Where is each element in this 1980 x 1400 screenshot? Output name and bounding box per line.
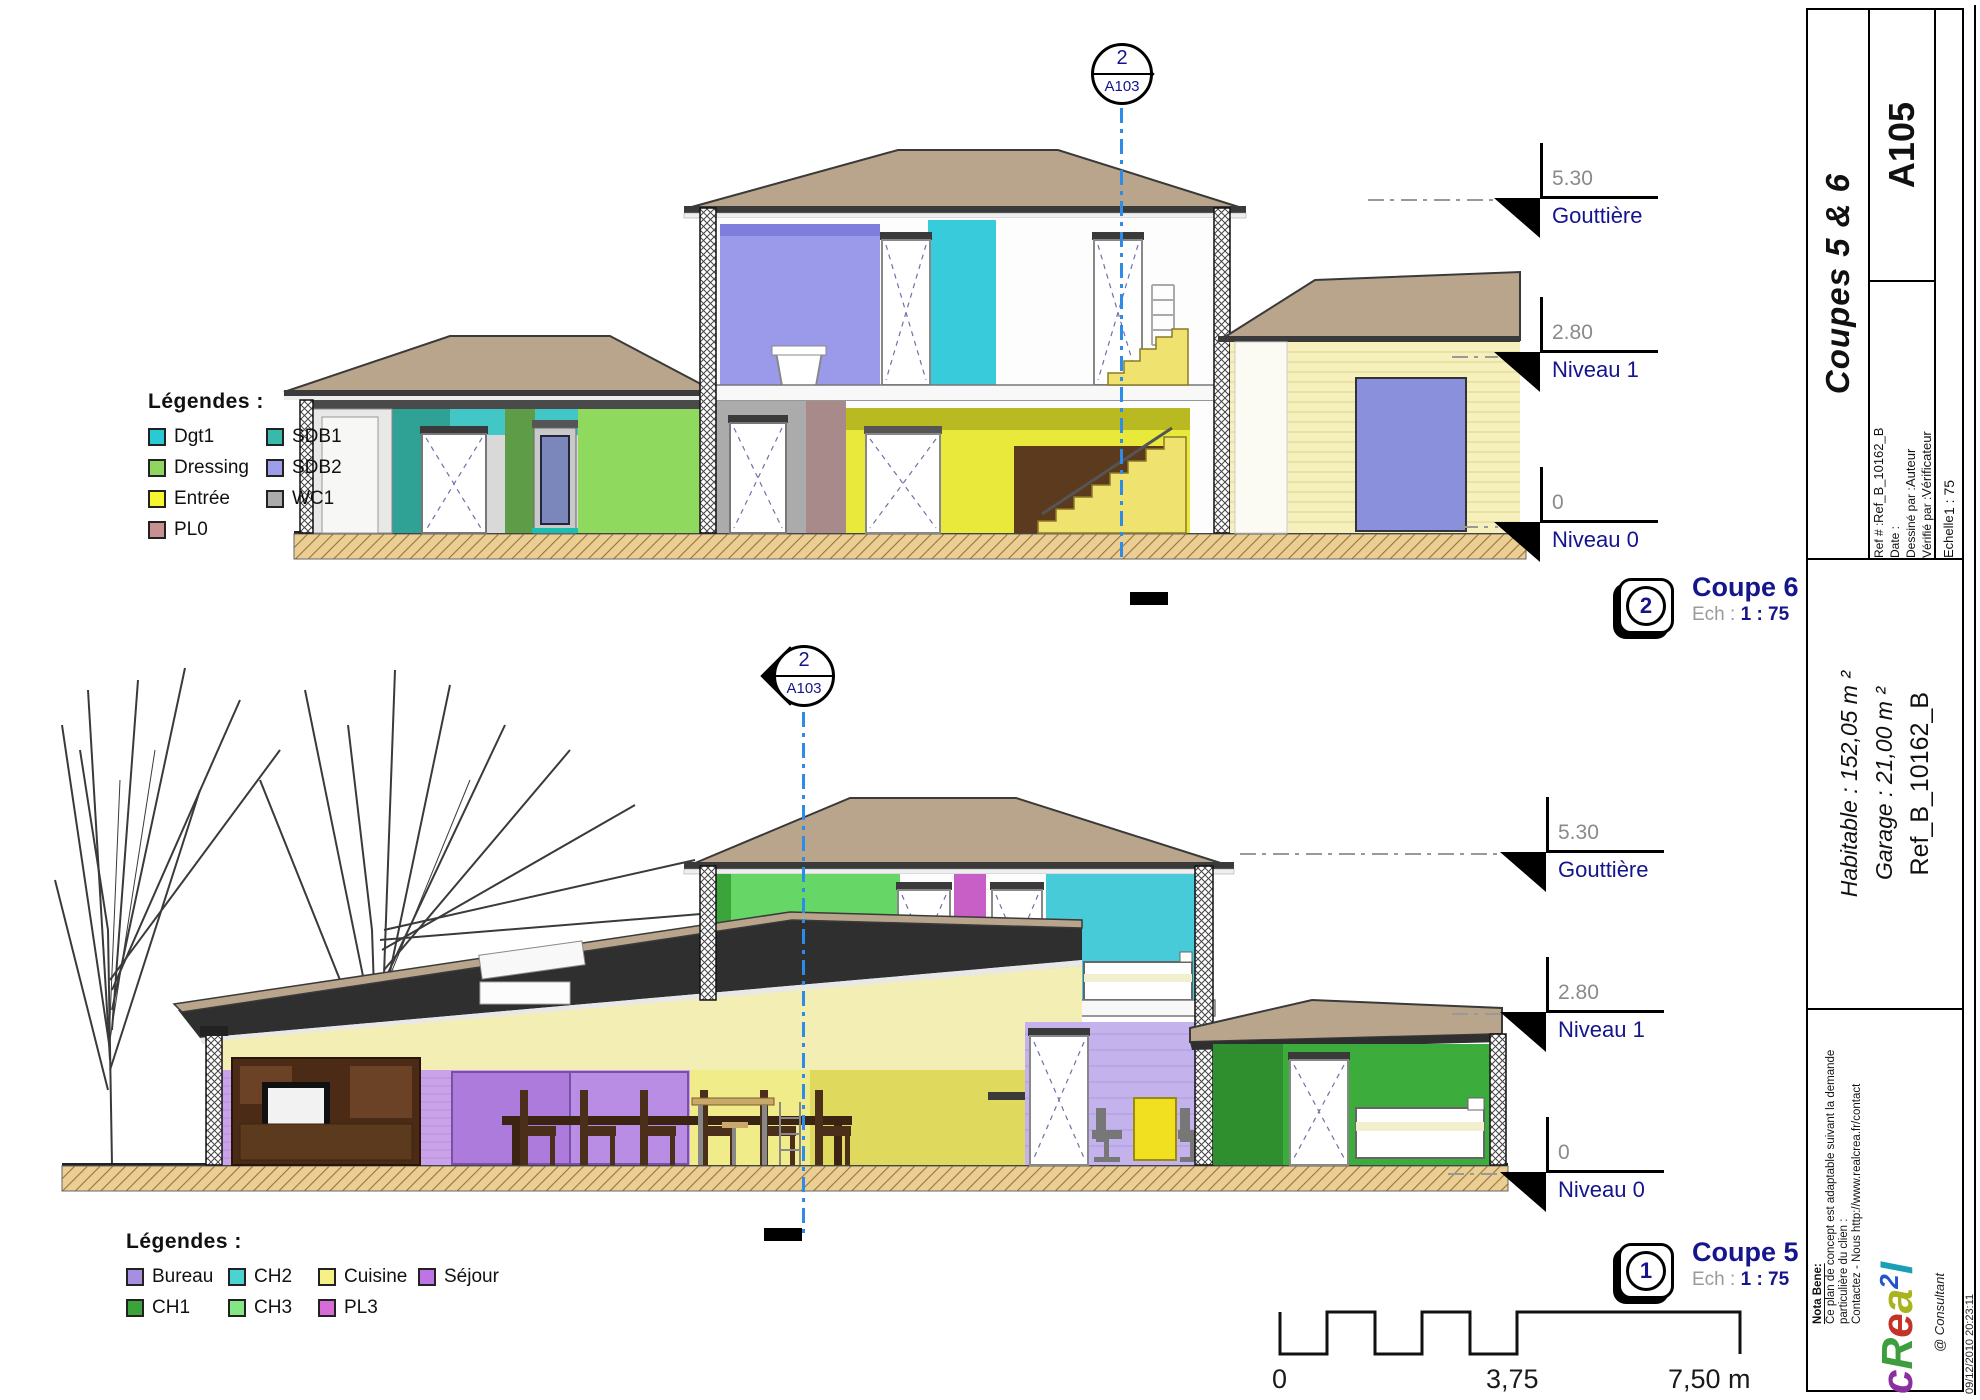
wall-hatched-right — [1195, 866, 1213, 1165]
scale-label: Echelle — [1941, 515, 1956, 558]
legend-item: CH1 — [126, 1297, 228, 1319]
scale-value: 1 : 75 — [1941, 480, 1957, 515]
ref-label: Ref # : — [1872, 523, 1886, 558]
coupe5-drawing — [50, 630, 1550, 1210]
scale-prefix: Ech : — [1692, 604, 1735, 625]
color-swatch — [418, 1268, 436, 1286]
desk — [1134, 1098, 1176, 1160]
section-marker-number: 2 — [773, 649, 835, 672]
legend-title: Légendes : — [148, 390, 342, 414]
garage-area: Garage : 21,00 m ² — [1871, 687, 1898, 880]
legend-item: SDB1 — [266, 426, 342, 448]
legend-item: Dgt1 — [148, 426, 266, 448]
garage-door — [1356, 378, 1466, 531]
scale-bar — [1278, 1302, 1778, 1362]
level-value: 0 — [1558, 1141, 1570, 1165]
wall-hatched-right — [1214, 208, 1230, 533]
right-wing — [1190, 1000, 1506, 1165]
level-triangle-icon — [1494, 522, 1540, 562]
legend-item: WC1 — [266, 488, 342, 510]
room-pl0 — [806, 401, 846, 533]
level-marker-niveau0: 0 Niveau 0 — [1500, 1115, 1730, 1215]
level-dash-line — [1452, 356, 1498, 358]
left-annex — [284, 336, 716, 533]
section-marker-sheet: A103 — [773, 680, 835, 697]
color-swatch — [126, 1299, 144, 1317]
field-checked-by: Vérifié par :Vérificateur — [1918, 282, 1934, 558]
level-triangle-icon — [1494, 352, 1540, 392]
legend-item: SDB2 — [266, 457, 342, 479]
field-drawn-by: Dessiné par :Auteur — [1902, 282, 1918, 558]
field-date: Date : — [1886, 282, 1902, 558]
sheet-title: Coupes 5 & 6 — [1819, 173, 1857, 394]
nota-line: Ce plan de concept est adaptable suivant… — [1825, 1018, 1838, 1324]
scale-middle: 3,75 — [1486, 1364, 1539, 1395]
scale-start: 0 — [1272, 1364, 1287, 1395]
level-triangle-icon — [1500, 1172, 1546, 1212]
nota-title: Nota Bene: — [1812, 1018, 1825, 1324]
color-swatch — [266, 428, 284, 446]
bureau-area — [1025, 1022, 1208, 1165]
level-value: 2.80 — [1552, 321, 1593, 345]
checked-label: Vérifié par : — [1920, 497, 1934, 558]
section-marker-divider — [776, 675, 832, 677]
level-label: Gouttière — [1552, 203, 1643, 229]
level-triangle-icon — [1500, 1012, 1546, 1052]
section-marker-divider — [1094, 73, 1150, 75]
color-swatch — [126, 1268, 144, 1286]
tv-cabinet — [232, 1058, 420, 1165]
checked-value: Vérificateur — [1919, 431, 1934, 497]
sheet-number: A105 — [1881, 102, 1923, 188]
level-dash-line — [1240, 853, 1502, 855]
section-cut-bar — [1130, 592, 1168, 605]
level-label: Gouttière — [1558, 857, 1649, 883]
level-dash-line — [1448, 1173, 1504, 1175]
legend-coupe5: Légendes : Bureau CH2 Cuisine Séjour CH1… — [126, 1230, 499, 1319]
field-ref: Ref # :Ref_B_10162_B — [1870, 282, 1886, 558]
level-marker-niveau1: 2.80 Niveau 1 — [1500, 955, 1730, 1055]
floor-slab — [700, 385, 1230, 401]
level-value: 0 — [1552, 491, 1564, 515]
coupe6-drawing — [280, 90, 1550, 610]
section-cut-bar — [764, 1228, 802, 1241]
title-block-notes: Nota Bene: Ce plan de concept est adapta… — [1808, 1010, 1962, 1388]
coupe6-label: Coupe 6 Ech : 1 : 75 — [1692, 572, 1799, 626]
level-value: 5.30 — [1552, 167, 1593, 191]
legend-coupe6: Légendes : Dgt1 SDB1 Dressing SDB2 Entré… — [148, 390, 342, 541]
left-wing — [174, 912, 1082, 1165]
level-value: 5.30 — [1558, 821, 1599, 845]
legend-item: PL3 — [318, 1297, 418, 1319]
ground-strip — [62, 1163, 1508, 1191]
legend-item: Dressing — [148, 457, 266, 479]
coupe5-number: 1 — [1626, 1251, 1666, 1291]
level-marker-gouttiere: 5.30 Gouttière — [1500, 795, 1730, 895]
print-timestamp: 09/12/2010 20:23:11 — [1964, 1238, 1976, 1394]
legend-title: Légendes : — [126, 1230, 499, 1254]
wall-hatched-left — [700, 866, 716, 1000]
color-swatch — [148, 490, 166, 508]
coupe6-number: 2 — [1626, 586, 1666, 626]
date-label: Date : — [1888, 526, 1902, 558]
section-marker-sheet: A103 — [1091, 78, 1153, 95]
color-swatch — [148, 459, 166, 477]
legend-item: CH3 — [228, 1297, 318, 1319]
color-swatch — [266, 490, 284, 508]
level-label: Niveau 1 — [1558, 1017, 1645, 1043]
color-swatch — [318, 1268, 336, 1286]
color-swatch — [148, 521, 166, 539]
ground-strip — [294, 531, 1526, 559]
section-marker-coupe5: 2 A103 — [756, 642, 876, 714]
legend-item: PL0 — [148, 519, 266, 541]
section-marker-number: 2 — [1091, 47, 1153, 70]
legend-item: Cuisine — [318, 1266, 418, 1288]
scale-value: 1 : 75 — [1741, 604, 1790, 625]
level-label: Niveau 0 — [1552, 527, 1639, 553]
drawn-label: Dessiné par : — [1904, 487, 1918, 558]
level-marker-gouttiere: 5.30 Gouttière — [1494, 141, 1724, 241]
coupe5-label: Coupe 5 Ech : 1 : 75 — [1692, 1237, 1799, 1291]
level-marker-niveau1: 2.80 Niveau 1 — [1494, 295, 1724, 395]
title-block-areas: Habitable : 152,05 m ² Garage : 21,00 m … — [1808, 560, 1962, 1010]
level-dash-line — [1368, 199, 1498, 201]
reference-code: Ref_B_10162_B — [1906, 692, 1935, 875]
level-dash-line — [1452, 1013, 1504, 1015]
room-dgt1 — [928, 220, 996, 385]
habitable-area: Habitable : 152,05 m ² — [1836, 671, 1863, 897]
level-triangle-icon — [1500, 852, 1546, 892]
section-cut-line — [1120, 108, 1123, 563]
level-dash-line — [1462, 526, 1498, 528]
garage-annex — [1218, 272, 1520, 533]
scale-end: 7,50 m — [1668, 1364, 1751, 1395]
level-triangle-icon — [1494, 198, 1540, 238]
legend-item: Bureau — [126, 1266, 228, 1288]
section-cut-line — [802, 712, 805, 1237]
color-swatch — [228, 1268, 246, 1286]
scale-prefix: Ech : — [1692, 1269, 1735, 1290]
wall-hatched-left — [700, 208, 716, 533]
legend-item: Séjour — [418, 1266, 499, 1288]
color-swatch — [318, 1299, 336, 1317]
coupe5-icon: 1 — [1618, 1243, 1674, 1299]
drawn-value: Auteur — [1903, 449, 1918, 487]
color-swatch — [228, 1299, 246, 1317]
scale-value: 1 : 75 — [1741, 1269, 1790, 1290]
field-scale: Echelle1 : 75 — [1936, 10, 1962, 558]
bed-ch1 — [1356, 1098, 1484, 1158]
coupe6-icon: 2 — [1618, 578, 1674, 634]
level-marker-niveau0: 0 Niveau 0 — [1494, 465, 1724, 565]
title-block-header: Coupes 5 & 6 A105 Ref # :Ref_B_10162_B D… — [1808, 10, 1962, 560]
crea-logo: cRea2l — [1840, 1272, 1956, 1384]
color-swatch — [148, 428, 166, 446]
legend-item: CH2 — [228, 1266, 318, 1288]
color-swatch — [266, 459, 284, 477]
ref-value: Ref_B_10162_B — [1871, 427, 1886, 522]
level-label: Niveau 1 — [1552, 357, 1639, 383]
level-label: Niveau 0 — [1558, 1177, 1645, 1203]
level-value: 2.80 — [1558, 981, 1599, 1005]
legend-item: Entrée — [148, 488, 266, 510]
sheet-border-right — [1974, 5, 1976, 1395]
title-block: Coupes 5 & 6 A105 Ref # :Ref_B_10162_B D… — [1806, 8, 1964, 1392]
section-marker-coupe6: 2 A103 — [1088, 40, 1208, 112]
